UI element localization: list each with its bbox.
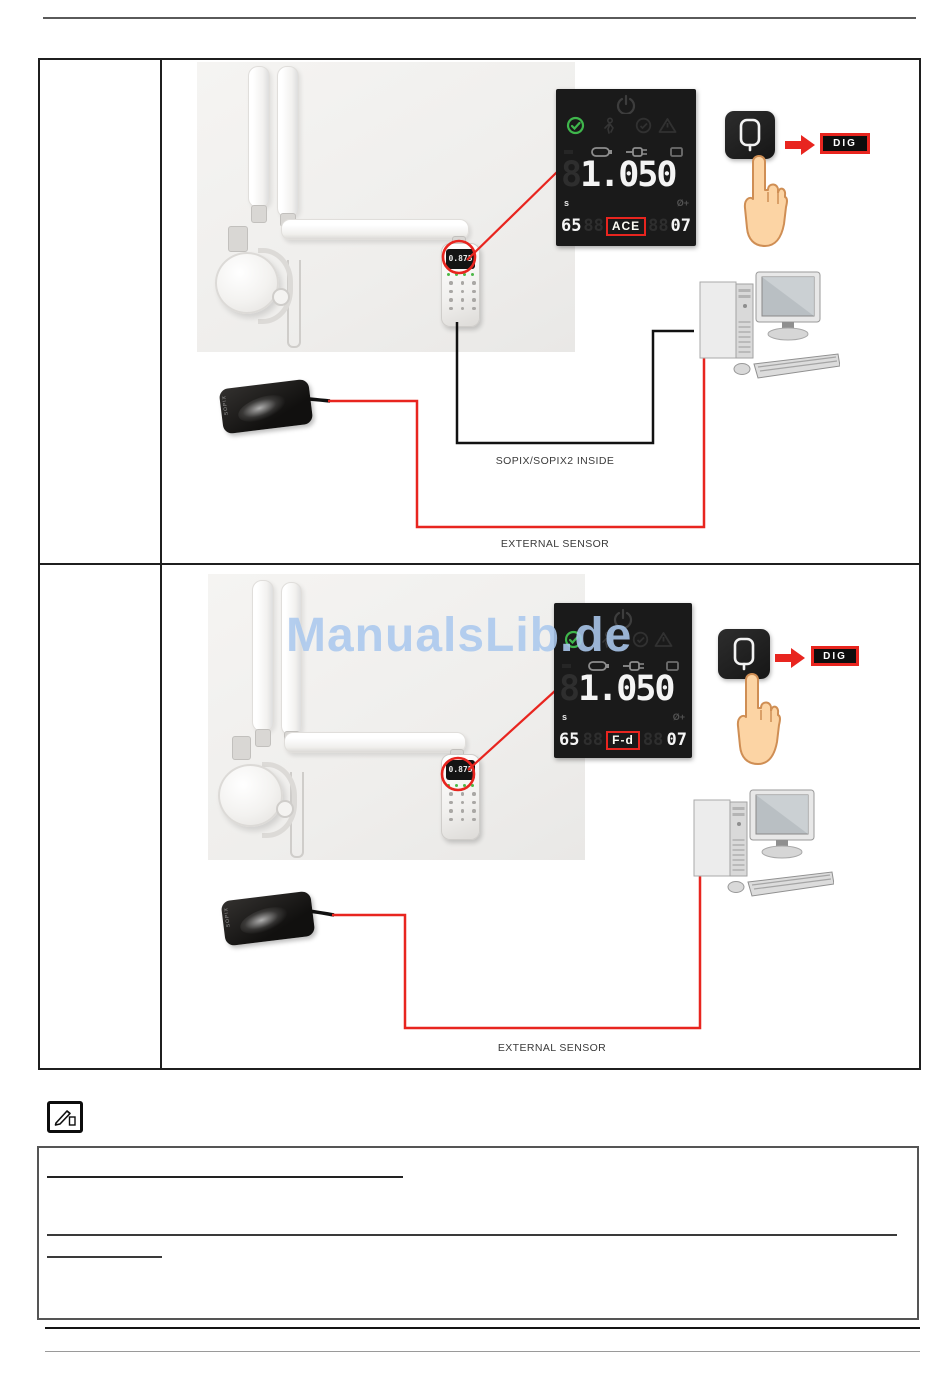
red-arrow-icon [783, 133, 817, 157]
ghost-pair: 88 [643, 730, 663, 750]
units-row: s Ø+ [564, 198, 689, 208]
underline-1 [47, 1176, 403, 1178]
xray-tubehead [218, 764, 283, 827]
status-circle-icon [632, 631, 649, 648]
power-icon [616, 94, 636, 114]
tubehead-collar [228, 226, 248, 252]
ready-check-icon [566, 116, 585, 135]
xray-tubehead [215, 252, 279, 314]
ghost-pair: 88 [648, 216, 668, 236]
computer-workstation [690, 266, 840, 388]
cone-symbol: Ø+ [677, 198, 689, 208]
exposure-time-value: 1.050 [580, 158, 675, 193]
seconds-unit: s [564, 198, 569, 208]
xray-arm-vertical-1 [252, 580, 274, 732]
xray-cone-tip [276, 800, 294, 818]
xray-cone-tip [272, 288, 290, 306]
red-arrow-icon [773, 646, 807, 670]
ghost-pair: 88 [583, 730, 603, 750]
manualslib-watermark: ManualsLib.de [286, 608, 632, 663]
xray-arm-vertical-2 [277, 66, 299, 218]
parameters-row: 65 88 F-d 88 07 [559, 727, 687, 753]
mode-value: F-d [606, 731, 640, 750]
xray-emission-icon [601, 117, 618, 134]
sensor-button-icon [731, 637, 757, 671]
sensor-cable-red [328, 356, 704, 527]
xray-arm-horizontal [281, 219, 469, 240]
ghost-icon [562, 664, 571, 668]
sopix-sensor: SOPIX [219, 379, 314, 435]
manual-page: 0.875 [0, 0, 950, 1388]
label-external-sensor: EXTERNAL SENSOR [445, 538, 665, 550]
ghost-digit: 8 [559, 672, 578, 707]
remote-display: 0.875 [446, 760, 475, 780]
label-sopix-inside: SOPIX/SOPIX2 INSIDE [445, 455, 665, 467]
status-circle-icon [635, 117, 652, 134]
tubehead-collar [232, 736, 251, 760]
notes-box [37, 1146, 919, 1320]
sensor-brand-text: SOPIX [223, 907, 231, 928]
control-panel-remote: 0.875 [441, 243, 480, 327]
exposure-time-display: 81.050 [559, 672, 687, 707]
units-row: s Ø+ [562, 712, 685, 722]
table-row-divider [40, 563, 919, 565]
xray-arm-vertical-1 [248, 66, 270, 208]
mode-value: ACE [606, 217, 646, 236]
ghost-pair: 88 [583, 216, 603, 236]
remote-display: 0.875 [446, 249, 475, 269]
remote-led-row [447, 784, 474, 787]
kv-value: 65 [561, 216, 581, 236]
warning-triangle-icon [658, 117, 677, 134]
wall-mount-photo: 0.875 [197, 62, 575, 352]
top-divider [43, 17, 916, 19]
exposure-time-value: 1.050 [578, 672, 673, 707]
underline-3 [47, 1256, 162, 1258]
exposure-time-display: 81.050 [561, 158, 691, 193]
arm-joint-1 [255, 729, 271, 747]
footer-divider-2 [45, 1351, 920, 1352]
control-panel-remote: 0.875 [441, 754, 480, 840]
note-callout-box [47, 1101, 83, 1133]
sensor-button-icon [737, 118, 763, 152]
remote-keypad [449, 281, 476, 310]
remote-led-row [447, 273, 474, 276]
xray-arm-horizontal [284, 732, 466, 753]
table-column-divider [160, 60, 162, 1068]
sensor-brand-text: SOPIX [221, 395, 229, 416]
ghost-digit: 8 [561, 158, 580, 193]
exposure-display-panel: 81.050 s Ø+ 65 88 ACE 88 07 [556, 89, 696, 246]
underline-2 [47, 1234, 897, 1236]
dig-mode-label: DIG [820, 133, 870, 154]
writing-hand-icon [54, 1108, 76, 1126]
ma-value: 07 [666, 730, 686, 750]
dig-mode-label: DIG [811, 646, 859, 666]
computer-workstation [684, 784, 834, 906]
pointing-hand [728, 150, 790, 248]
kv-value: 65 [559, 730, 579, 750]
ghost-icon [564, 150, 573, 154]
arm-joint-1 [251, 205, 267, 223]
footer-divider-1 [45, 1327, 920, 1329]
label-external-sensor: EXTERNAL SENSOR [442, 1042, 662, 1054]
remote-keypad [449, 792, 476, 821]
sopix-sensor: SOPIX [221, 891, 316, 947]
pointing-hand [721, 668, 783, 766]
cone-symbol: Ø+ [673, 712, 685, 722]
ma-value: 07 [670, 216, 690, 236]
seconds-unit: s [562, 712, 567, 722]
parameters-row: 65 88 ACE 88 07 [561, 213, 691, 239]
sensor-cable-red [332, 868, 700, 1028]
warning-triangle-icon [654, 631, 673, 648]
